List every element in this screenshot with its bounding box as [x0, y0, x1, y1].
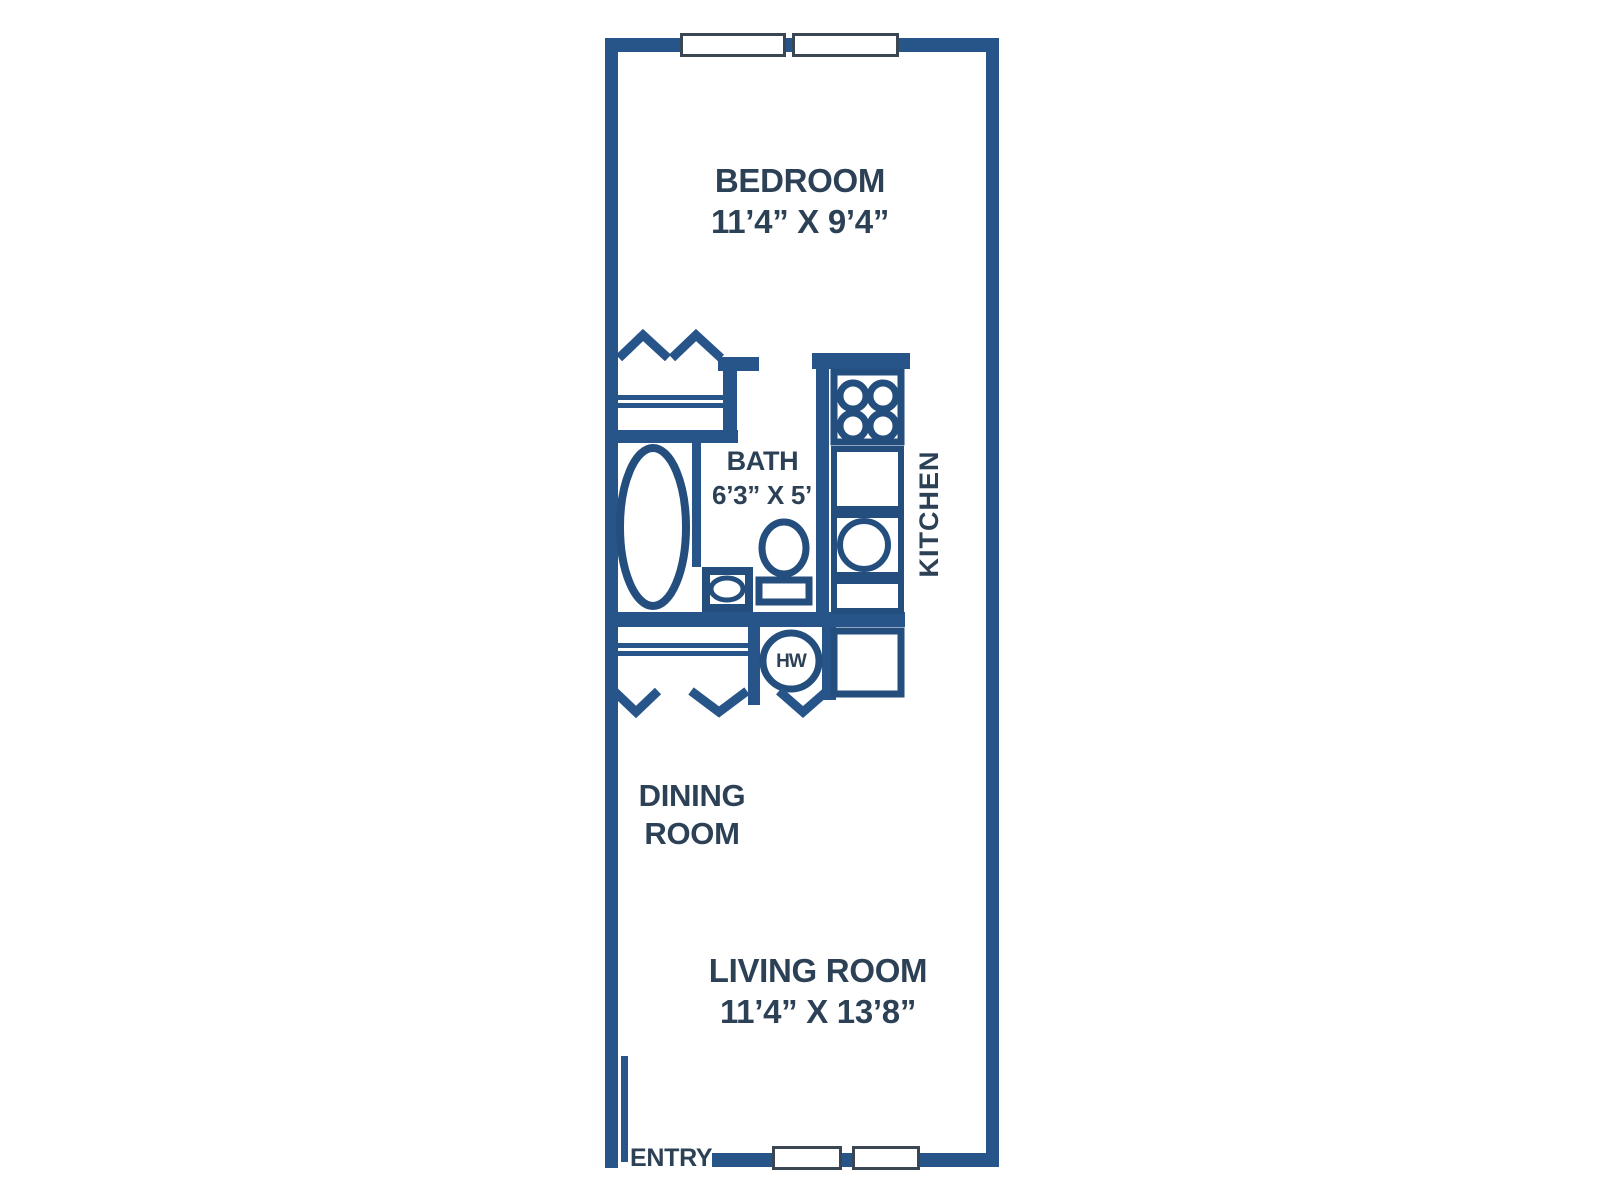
bedroom-closet-bifold-icon	[619, 335, 721, 358]
bath-label: BATH	[700, 446, 825, 477]
bathroom-sink-icon	[706, 571, 749, 608]
linen-closet-bifold-icon	[614, 691, 747, 712]
kitchen-label: KITCHEN	[913, 434, 945, 594]
bathtub-icon	[620, 448, 686, 606]
kitchen-sink-icon	[840, 521, 888, 569]
bedroom-label: BEDROOM	[650, 162, 950, 200]
water-heater-label: HW	[769, 651, 813, 673]
toilet-icon	[759, 522, 809, 602]
entry-label: ENTRY	[630, 1144, 710, 1173]
living-room-dims: 11’4” X 13’8”	[668, 993, 968, 1031]
stove-icon	[834, 372, 901, 442]
dining-room-label-line2: ROOM	[634, 816, 750, 852]
bath-dims: 6’3” X 5’	[683, 480, 841, 511]
floor-plan: BEDROOM 11’4” X 9’4” BATH 6’3” X 5’ KITC…	[0, 0, 1600, 1200]
bedroom-dims: 11’4” X 9’4”	[650, 203, 950, 241]
living-room-label: LIVING ROOM	[668, 952, 968, 990]
dining-room-label-line1: DINING	[634, 778, 750, 814]
water-heater-door-icon	[779, 691, 827, 712]
